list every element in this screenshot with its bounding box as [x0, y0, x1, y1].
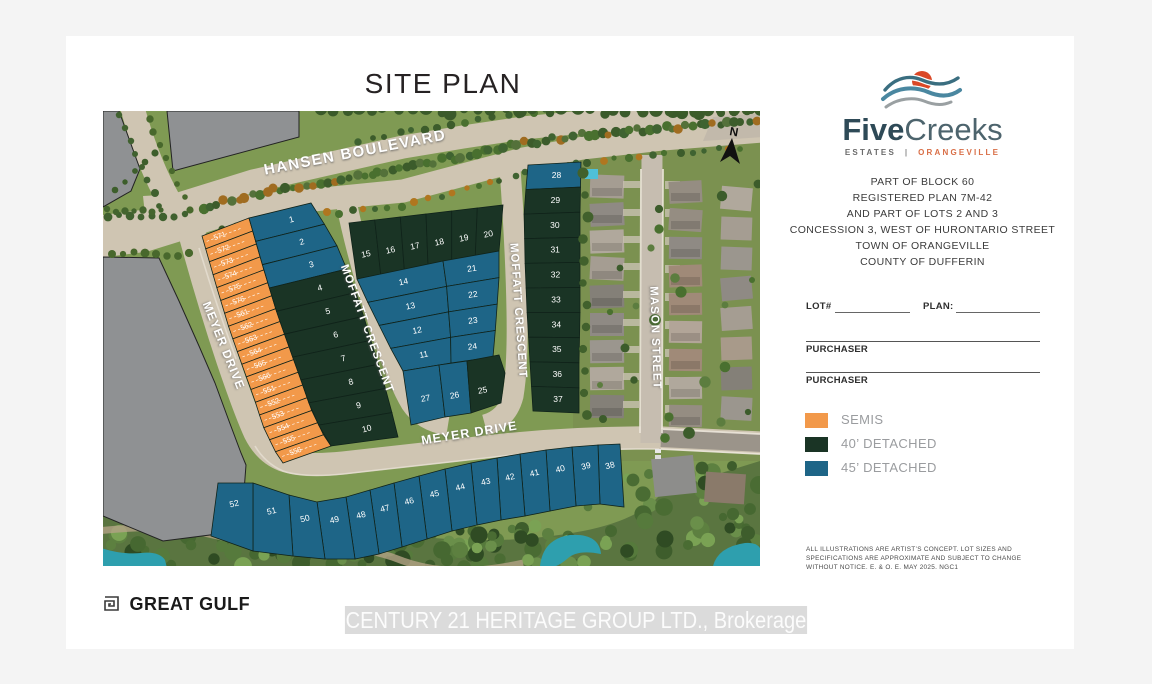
svg-text:32: 32	[551, 270, 561, 280]
svg-text:36: 36	[553, 369, 563, 379]
svg-text:28: 28	[552, 170, 562, 180]
svg-text:26: 26	[449, 389, 460, 401]
svg-text:35: 35	[552, 344, 562, 354]
svg-text:23: 23	[467, 315, 478, 326]
svg-text:25: 25	[477, 384, 488, 396]
svg-text:31: 31	[550, 245, 560, 255]
svg-text:33: 33	[551, 294, 561, 304]
svg-text:30: 30	[550, 220, 560, 230]
svg-text:37: 37	[553, 394, 563, 404]
svg-text:34: 34	[552, 319, 562, 329]
svg-text:24: 24	[467, 341, 478, 352]
svg-text:29: 29	[551, 195, 561, 205]
svg-text:27: 27	[420, 392, 431, 404]
svg-text:21: 21	[466, 263, 477, 274]
svg-text:22: 22	[467, 289, 478, 300]
